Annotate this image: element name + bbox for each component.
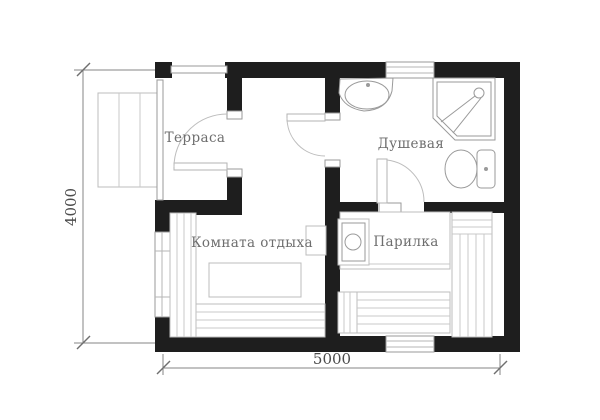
steam-bench-lower <box>338 292 450 333</box>
shower-cabin-icon <box>433 78 495 140</box>
room-label-lounge: Комната отдыха <box>191 235 313 251</box>
room-label-shower: Душевая <box>378 136 444 152</box>
terrace-corner-post <box>155 62 172 78</box>
dimension-horizontal-value: 5000 <box>313 350 351 368</box>
table-icon <box>209 263 301 297</box>
dimension-vertical-value: 4000 <box>62 188 80 226</box>
wall-right <box>504 62 520 352</box>
window-bottom-steam <box>386 336 434 352</box>
lounge-bench-left <box>170 213 196 337</box>
floor-plan-canvas: 4000 5000 <box>0 0 600 420</box>
room-label-terrace: Терраса <box>165 130 226 146</box>
steps-icon <box>98 93 160 187</box>
railing-left <box>157 80 163 200</box>
door-hall-shower <box>287 114 325 156</box>
floor-plan: 4000 5000 <box>0 0 600 420</box>
window-top-shower <box>386 62 434 78</box>
railing-top <box>171 66 227 73</box>
sink-icon <box>339 78 393 111</box>
door-opening-terrace <box>227 111 242 177</box>
wall-top <box>225 62 520 78</box>
toilet-icon <box>445 150 495 188</box>
door-opening-hall-shower <box>325 113 340 167</box>
steam-bench-right <box>452 212 492 337</box>
room-label-steam: Парилка <box>373 234 438 250</box>
window-left-lounge <box>155 232 170 317</box>
lounge-bench-bottom <box>196 304 325 337</box>
door-shower-steam <box>377 159 424 203</box>
dimension-horizontal: 5000 <box>157 350 507 375</box>
door-opening-shower-steam <box>378 202 424 213</box>
stove-icon <box>338 219 369 265</box>
